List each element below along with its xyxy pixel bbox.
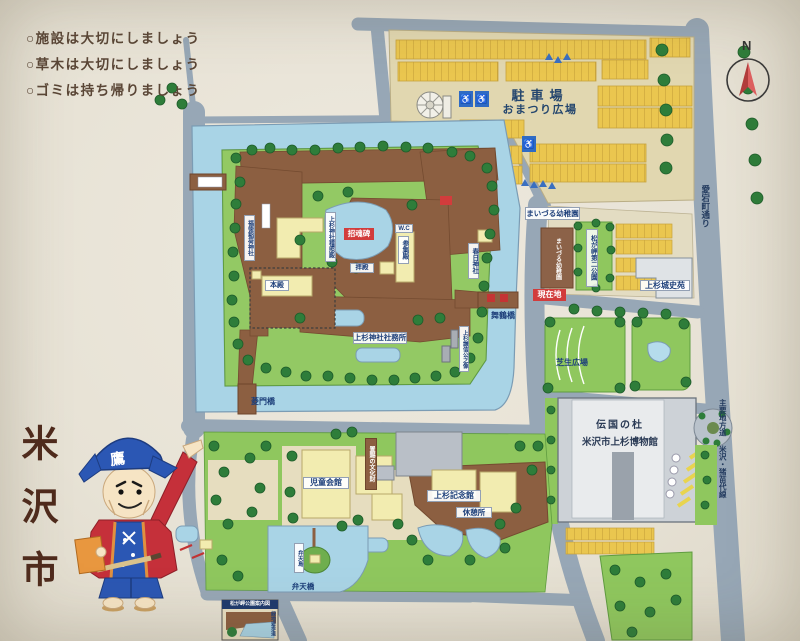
label-children-hall: 児童会館: [303, 477, 349, 489]
accessible-parking-icon: ♿: [459, 91, 473, 107]
label-kindergarten: まいづる幼稚園: [525, 207, 580, 220]
label-benten-island: 弁天島: [294, 543, 304, 573]
compass-n-label: N: [742, 38, 751, 53]
label-lawn-plaza: 芝生広場: [549, 357, 595, 368]
label-wc: W.C: [395, 224, 413, 233]
label-haiden: 拝殿: [350, 263, 374, 273]
label-fukutoku-inari: 福徳稲荷神社: [244, 215, 255, 261]
street-name-pref-road: 主要地方道 米沢・猪苗代線: [716, 366, 729, 531]
label-maizuru-bridge: 舞鶴橋: [484, 310, 522, 321]
label-rest-area: 休憩所: [456, 507, 492, 518]
mascot-hat-kanji: 鷹: [109, 447, 127, 470]
parking-subtitle: おまつり広場: [500, 104, 580, 117]
parking-title: 駐車場: [500, 88, 580, 103]
label-shamusho: 上杉神社社務所: [353, 332, 407, 344]
rule-line-2: ○草木は大切にしましょう: [26, 52, 201, 78]
water-tower: [417, 92, 451, 118]
label-kenshin-statue: 上杉謙信公之像: [459, 326, 469, 372]
label-second-park: 松が岬第二公園: [586, 229, 598, 287]
honden-enclosure: [250, 268, 335, 328]
street-name-atago: 愛宕町通り: [699, 150, 712, 262]
sign-rules: ○施設は大切にしましょう ○草木は大切にしましょう ○ゴミは持ち帰りましょう: [26, 26, 201, 104]
island-pond-south2: [356, 348, 400, 362]
label-sanshuden: 参集殿: [398, 236, 409, 264]
label-shokonhi: 招魂碑: [344, 228, 374, 240]
mascot-foot: [103, 598, 123, 609]
label-benten-bridge: 弁天橋: [286, 581, 320, 592]
you-are-here-marker: 現在地: [533, 289, 566, 301]
small-red-marker: [440, 196, 452, 205]
museum-name-line2: 米沢市上杉博物館: [558, 436, 682, 449]
city-name: 米沢市: [8, 424, 62, 613]
mascot-kimono: [111, 522, 147, 578]
rule-line-1: ○施設は大切にしましょう: [26, 26, 201, 52]
label-hishimon-bridge: 菱門橋: [244, 396, 282, 407]
label-kinenkan: 上杉記念館: [427, 490, 481, 502]
inset-side-label: 緑地遊歩道: [268, 605, 277, 641]
gymnasium-building: [396, 432, 462, 476]
west-bridge-label-box: [198, 177, 222, 187]
label-keishoden: 上杉神社稽照殿: [325, 212, 336, 262]
kindergarten-building-label: まいづる幼稚園: [552, 233, 563, 285]
label-okitama-bunkazai: 置賜の文化財: [365, 438, 377, 490]
maizuru-bridge: [478, 292, 518, 308]
accessible-parking-icon: ♿: [522, 136, 536, 152]
label-kasuga: 春日神社: [468, 243, 479, 279]
mascot-character: [75, 438, 203, 611]
compass: [727, 59, 769, 101]
museum-name-line1: 伝国の杜: [570, 419, 670, 432]
rule-line-3: ○ゴミは持ち帰りましょう: [26, 78, 201, 104]
label-honden: 本殿: [265, 280, 289, 291]
label-joshien: 上杉城史苑: [640, 280, 690, 291]
lawn-plaza: [545, 318, 690, 392]
park-sign-board: ○施設は大切にしましょう ○草木は大切にしましょう ○ゴミは持ち帰りましょう 米…: [0, 0, 800, 641]
accessible-parking-icon: ♿: [475, 91, 489, 107]
mascot-face: [103, 466, 155, 518]
small-label-box: [262, 204, 270, 228]
museum-south-stalls: [566, 528, 654, 554]
mascot-foot: [135, 598, 155, 609]
